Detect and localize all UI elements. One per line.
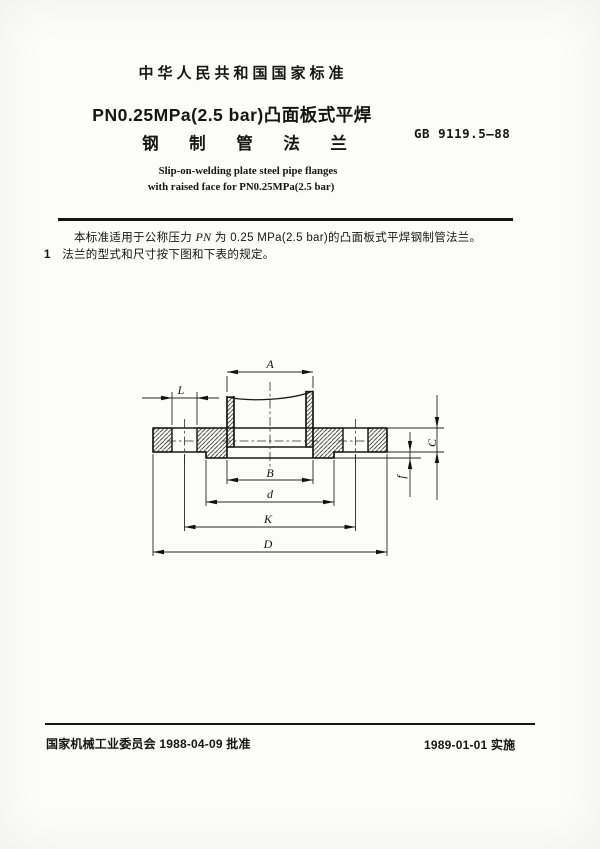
scope-text-prefix: 本标准适用于公称压力 xyxy=(74,232,196,244)
approval-notice: 国家机械工业委员会 1988-04-09 批准 xyxy=(46,735,251,752)
dim-label-K: K xyxy=(263,512,273,526)
dim-label-D: D xyxy=(263,537,273,551)
standard-title-line2: 钢 制 管 法 兰 xyxy=(142,130,360,154)
flange-section-figure: A L B d K D C f xyxy=(128,352,462,570)
standard-document-page: 中华人民共和国国家标准 PN0.25MPa(2.5 bar)凸面板式平焊 钢 制… xyxy=(0,0,600,849)
footer-divider-rule xyxy=(45,723,535,725)
centerlines xyxy=(167,382,373,470)
scope-pn-symbol: PN xyxy=(196,230,212,244)
dim-label-f: f xyxy=(394,474,408,479)
dim-label-B: B xyxy=(266,466,274,480)
standard-number: GB 9119.5—88 xyxy=(414,126,510,141)
subtitle-english-line2: with raised face for PN0.25MPa(2.5 bar) xyxy=(148,181,335,193)
implementation-notice: 1989-01-01 实施 xyxy=(424,736,515,753)
dim-label-A: A xyxy=(265,357,274,371)
national-standard-label: 中华人民共和国国家标准 xyxy=(138,62,347,83)
dim-label-C: C xyxy=(425,438,439,447)
scope-paragraph: 本标准适用于公称压力 PN 为 0.25 MPa(2.5 bar)的凸面板式平焊… xyxy=(74,229,481,245)
dim-label-L: L xyxy=(177,383,185,397)
header-divider-rule xyxy=(58,218,513,221)
subtitle-english-line1: Slip-on-welding plate steel pipe flanges xyxy=(159,165,338,177)
clause-1-text: 法兰的型式和尺寸按下图和下表的规定。 xyxy=(62,249,274,261)
dim-label-d: d xyxy=(267,487,274,501)
scope-text-suffix: 为 0.25 MPa(2.5 bar)的凸面板式平焊钢制管法兰。 xyxy=(211,232,481,244)
clause-1-number: 1 xyxy=(44,249,51,261)
clause-1-line: 1 法兰的型式和尺寸按下图和下表的规定。 xyxy=(44,246,275,262)
extension-lines xyxy=(153,376,444,556)
standard-title-line1: PN0.25MPa(2.5 bar)凸面板式平焊 xyxy=(92,102,371,127)
